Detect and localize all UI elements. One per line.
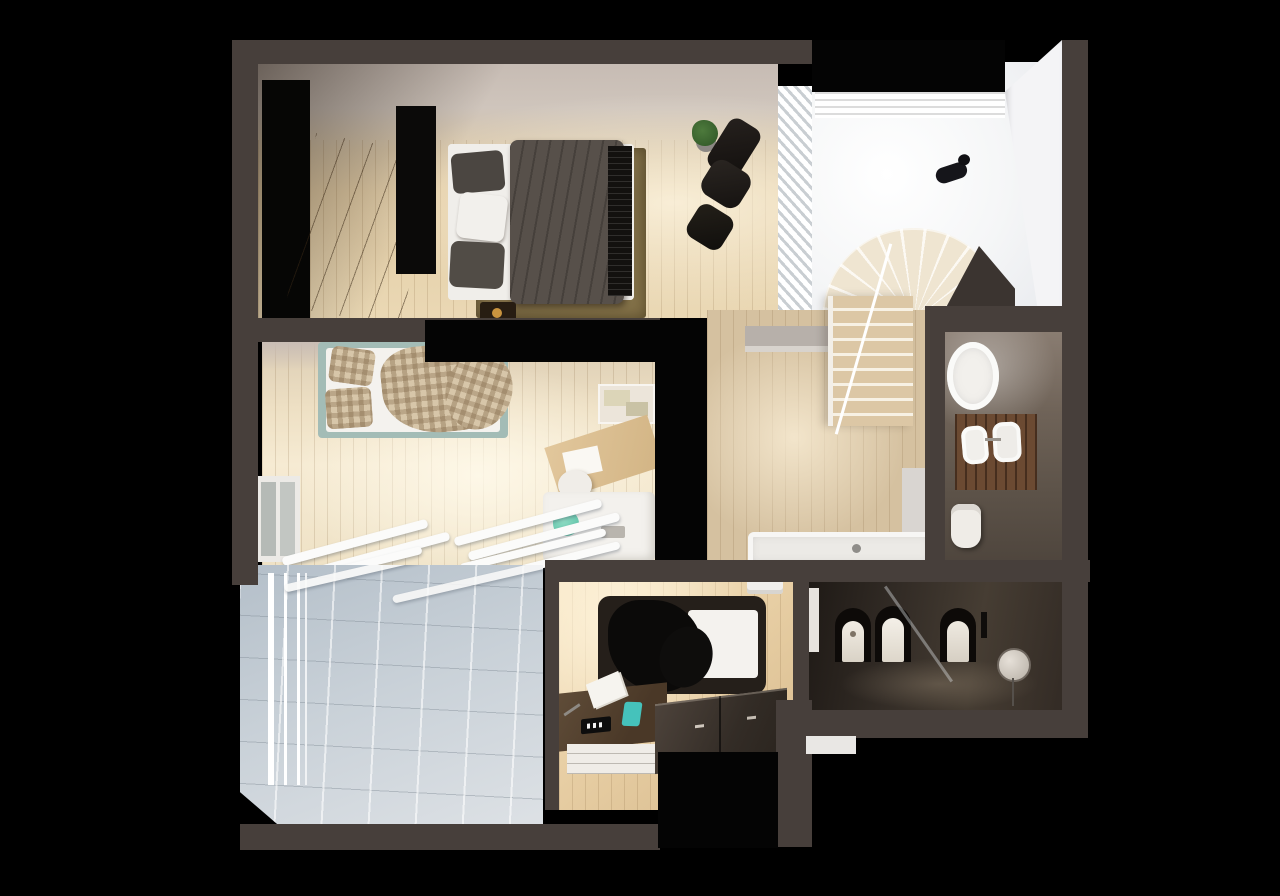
wardrobe-handle-1 xyxy=(695,724,704,728)
grey-duvet xyxy=(510,140,624,304)
toilet-2 xyxy=(947,621,969,662)
checkered-pillow-1 xyxy=(328,345,377,387)
basin-left xyxy=(960,425,989,465)
shower-column xyxy=(981,612,987,638)
window-pane-1 xyxy=(261,482,276,556)
room-master-bedroom xyxy=(258,62,778,318)
oval-bathtub xyxy=(947,342,999,410)
mirror-stand xyxy=(1012,678,1014,706)
wall-darkbath-bottom xyxy=(776,710,1088,738)
wall-left xyxy=(232,40,258,585)
wall-landing-right xyxy=(1062,40,1088,312)
terrace-railing xyxy=(268,573,307,785)
scissors xyxy=(563,703,580,716)
toilet-1 xyxy=(882,618,904,662)
room-terrace xyxy=(240,565,543,826)
void-under-bedroom3 xyxy=(658,752,778,848)
checkered-pillow-2 xyxy=(325,386,374,429)
pillow-white xyxy=(455,191,508,243)
window-pane-2 xyxy=(280,482,295,556)
wardrobe-handle-2 xyxy=(747,716,756,720)
pillow-grey-2 xyxy=(449,241,505,290)
bidet xyxy=(842,621,864,662)
room-dark-bathroom xyxy=(809,582,1062,710)
desk-surface xyxy=(559,682,667,751)
hall-cabinet xyxy=(745,326,837,352)
round-mirror xyxy=(997,648,1031,682)
floor-plan-render xyxy=(0,0,1280,896)
room-ensuite-bathroom xyxy=(945,330,1062,565)
teal-phone xyxy=(621,702,642,727)
slatted-skylight xyxy=(815,92,1005,118)
niche-toilet-2 xyxy=(940,608,976,662)
side-window xyxy=(256,476,300,562)
wall-terrace-bedroom-divider xyxy=(545,560,559,810)
candle xyxy=(492,308,502,318)
roof-notch xyxy=(812,40,1005,92)
basin-right xyxy=(992,421,1022,462)
wall-darkbath-right xyxy=(1062,560,1088,738)
wall-bedroom3-right xyxy=(793,560,809,720)
alarm-clock xyxy=(581,716,611,734)
double-bed xyxy=(448,144,634,300)
niche-bidet xyxy=(835,608,871,662)
single-bed xyxy=(598,596,766,694)
tub-faucet xyxy=(852,544,861,553)
wall-lower-middle xyxy=(545,560,1090,582)
wall-ensuite-right xyxy=(1062,312,1088,565)
outside-step xyxy=(806,736,856,754)
headboard-panel xyxy=(396,106,436,274)
wall-ensuite-left xyxy=(925,332,945,565)
toilet xyxy=(951,504,981,548)
storage-box-2 xyxy=(626,402,648,416)
basin-faucet xyxy=(985,438,1001,441)
desk-drawer-front xyxy=(567,744,667,774)
wall-bottom xyxy=(240,824,660,850)
foot-bench xyxy=(608,146,632,296)
room-second-bedroom xyxy=(262,342,655,565)
pillow-grey-1 xyxy=(450,150,505,194)
wall-middle-hall-dark xyxy=(655,320,707,565)
louvered-window-screen xyxy=(778,86,812,316)
plant-leaves xyxy=(692,120,718,146)
wall-top xyxy=(232,40,812,64)
wall-corner-column xyxy=(776,700,812,847)
clock-digits xyxy=(587,722,605,729)
bidet-faucet xyxy=(850,631,856,637)
